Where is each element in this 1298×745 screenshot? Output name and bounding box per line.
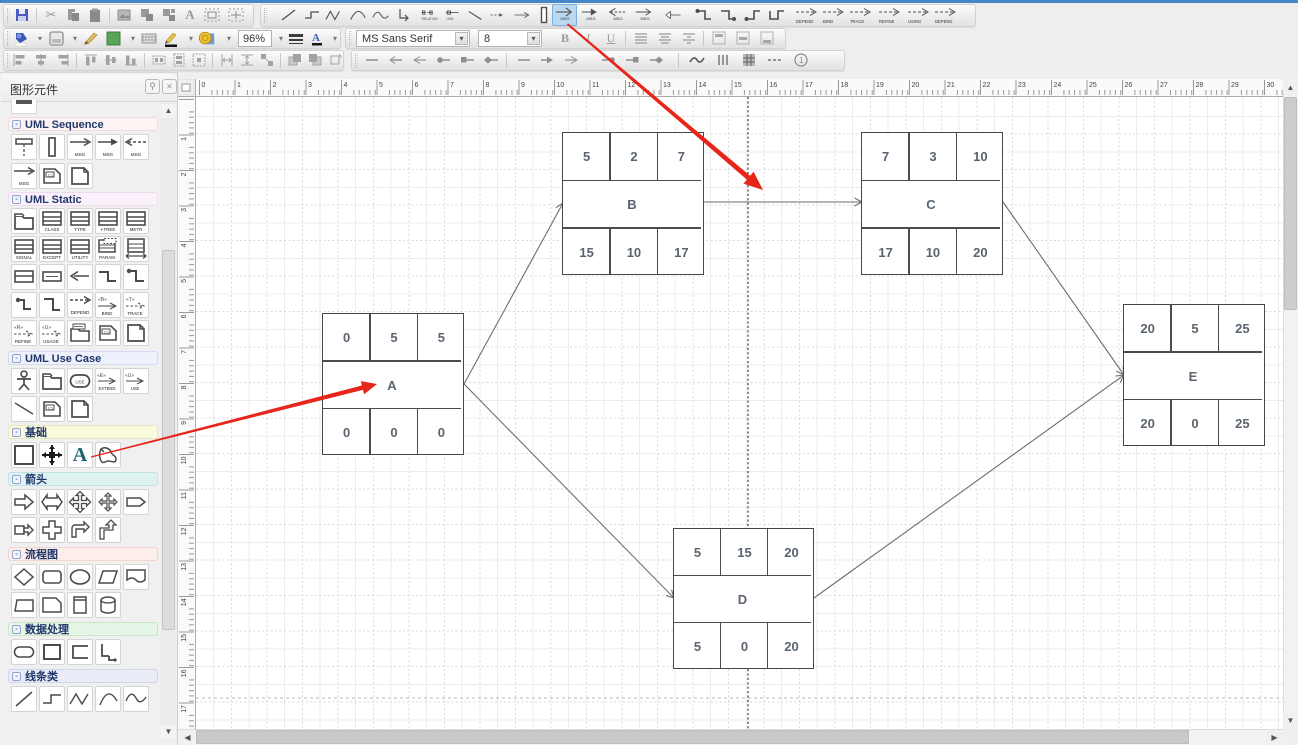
svg-text:CLASS: CLASS <box>45 227 60 232</box>
svg-text:MSG: MSG <box>131 152 142 157</box>
svg-text:«E»: «E» <box>97 373 106 379</box>
svg-text:«R»: «R» <box>14 325 23 331</box>
svg-text:23: 23 <box>1018 82 1026 89</box>
svg-text:REFINE: REFINE <box>15 339 32 344</box>
svg-text:USE: USE <box>131 386 140 391</box>
svg-text:UTILITY: UTILITY <box>72 255 89 260</box>
svg-text:15: 15 <box>734 82 742 89</box>
svg-text:15: 15 <box>181 634 188 642</box>
svg-text:METR: METR <box>130 227 143 232</box>
svg-text:DEPEND: DEPEND <box>71 310 91 315</box>
svg-text:24: 24 <box>1054 82 1062 89</box>
svg-text:REFINE: REFINE <box>879 19 895 24</box>
svg-text:MSG: MSG <box>103 152 114 157</box>
svg-text:«U»: «U» <box>125 373 134 379</box>
svg-text:«T»: «T» <box>126 297 135 303</box>
svg-text:8: 8 <box>181 385 188 389</box>
svg-text:3: 3 <box>308 82 312 89</box>
svg-text:TRACE: TRACE <box>850 19 864 24</box>
svg-text:EXTEND: EXTEND <box>99 386 116 391</box>
svg-text:6: 6 <box>181 314 188 318</box>
svg-text:11: 11 <box>592 82 599 89</box>
svg-text:28: 28 <box>1196 82 1204 89</box>
svg-text:16: 16 <box>770 82 778 89</box>
svg-text:DEPEND: DEPEND <box>935 19 952 24</box>
svg-text:12: 12 <box>181 527 188 535</box>
svg-text:2: 2 <box>273 82 277 89</box>
svg-text:25: 25 <box>1089 82 1097 89</box>
svg-text:1: 1 <box>237 82 241 89</box>
svg-text:9: 9 <box>521 82 525 89</box>
svg-text:22: 22 <box>983 82 991 89</box>
svg-text:C1: C1 <box>48 173 54 178</box>
svg-text:17: 17 <box>805 82 813 89</box>
svg-text:10: 10 <box>181 456 188 464</box>
svg-text:2: 2 <box>181 172 188 176</box>
svg-text:9: 9 <box>181 421 188 425</box>
svg-text:7: 7 <box>181 350 188 354</box>
svg-text:21: 21 <box>947 82 955 89</box>
svg-text:USAGE: USAGE <box>43 339 59 344</box>
svg-text:26: 26 <box>1125 82 1133 89</box>
svg-text:5: 5 <box>379 82 383 89</box>
svg-text:0: 0 <box>202 82 206 89</box>
svg-text:MSG: MSG <box>19 181 30 186</box>
svg-text:27: 27 <box>1160 82 1168 89</box>
svg-text:1: 1 <box>799 56 804 65</box>
svg-text:MSG: MSG <box>75 152 86 157</box>
svg-text:5: 5 <box>181 279 188 283</box>
svg-text:TYPE: TYPE <box>74 227 86 232</box>
svg-text:BIND: BIND <box>823 19 833 24</box>
svg-text:DEPEND: DEPEND <box>796 19 813 24</box>
svg-text:1: 1 <box>181 137 188 141</box>
svg-text:30: 30 <box>1267 82 1275 89</box>
svg-text:4: 4 <box>181 243 188 247</box>
svg-text:14: 14 <box>181 598 188 606</box>
svg-text:19: 19 <box>876 82 884 89</box>
svg-text:8: 8 <box>486 82 490 89</box>
svg-text:SIGNAL: SIGNAL <box>16 255 33 260</box>
svg-text:USING: USING <box>908 19 921 24</box>
svg-text:TRACE: TRACE <box>127 311 142 316</box>
svg-text:6: 6 <box>415 82 419 89</box>
svg-text:EXCEPT: EXCEPT <box>43 255 61 260</box>
svg-text:«B»: «B» <box>98 297 107 303</box>
svg-text:RELATION: RELATION <box>422 17 438 21</box>
svg-text:C1: C1 <box>104 330 110 335</box>
svg-text:29: 29 <box>1231 82 1239 89</box>
svg-text:10: 10 <box>557 82 565 89</box>
svg-text:13: 13 <box>181 563 188 571</box>
svg-text:13: 13 <box>663 82 671 89</box>
svg-text:14: 14 <box>699 82 707 89</box>
svg-text:7: 7 <box>450 82 454 89</box>
svg-text:I-TREE: I-TREE <box>101 227 116 232</box>
svg-text:17: 17 <box>181 705 188 713</box>
svg-text:«U»: «U» <box>42 325 51 331</box>
svg-text:16: 16 <box>181 669 188 677</box>
svg-text:20: 20 <box>912 82 920 89</box>
svg-text:12: 12 <box>628 82 636 89</box>
svg-text:C1: C1 <box>48 406 54 411</box>
svg-text:PARAM: PARAM <box>99 255 115 260</box>
svg-text:11: 11 <box>181 492 188 499</box>
svg-text:3: 3 <box>181 208 188 212</box>
svg-text:A: A <box>312 32 320 44</box>
svg-text:LINK: LINK <box>446 17 454 21</box>
svg-text:4: 4 <box>344 82 348 89</box>
svg-text:18: 18 <box>841 82 849 89</box>
svg-text:BIND: BIND <box>102 311 114 316</box>
svg-text:USE: USE <box>75 380 84 385</box>
